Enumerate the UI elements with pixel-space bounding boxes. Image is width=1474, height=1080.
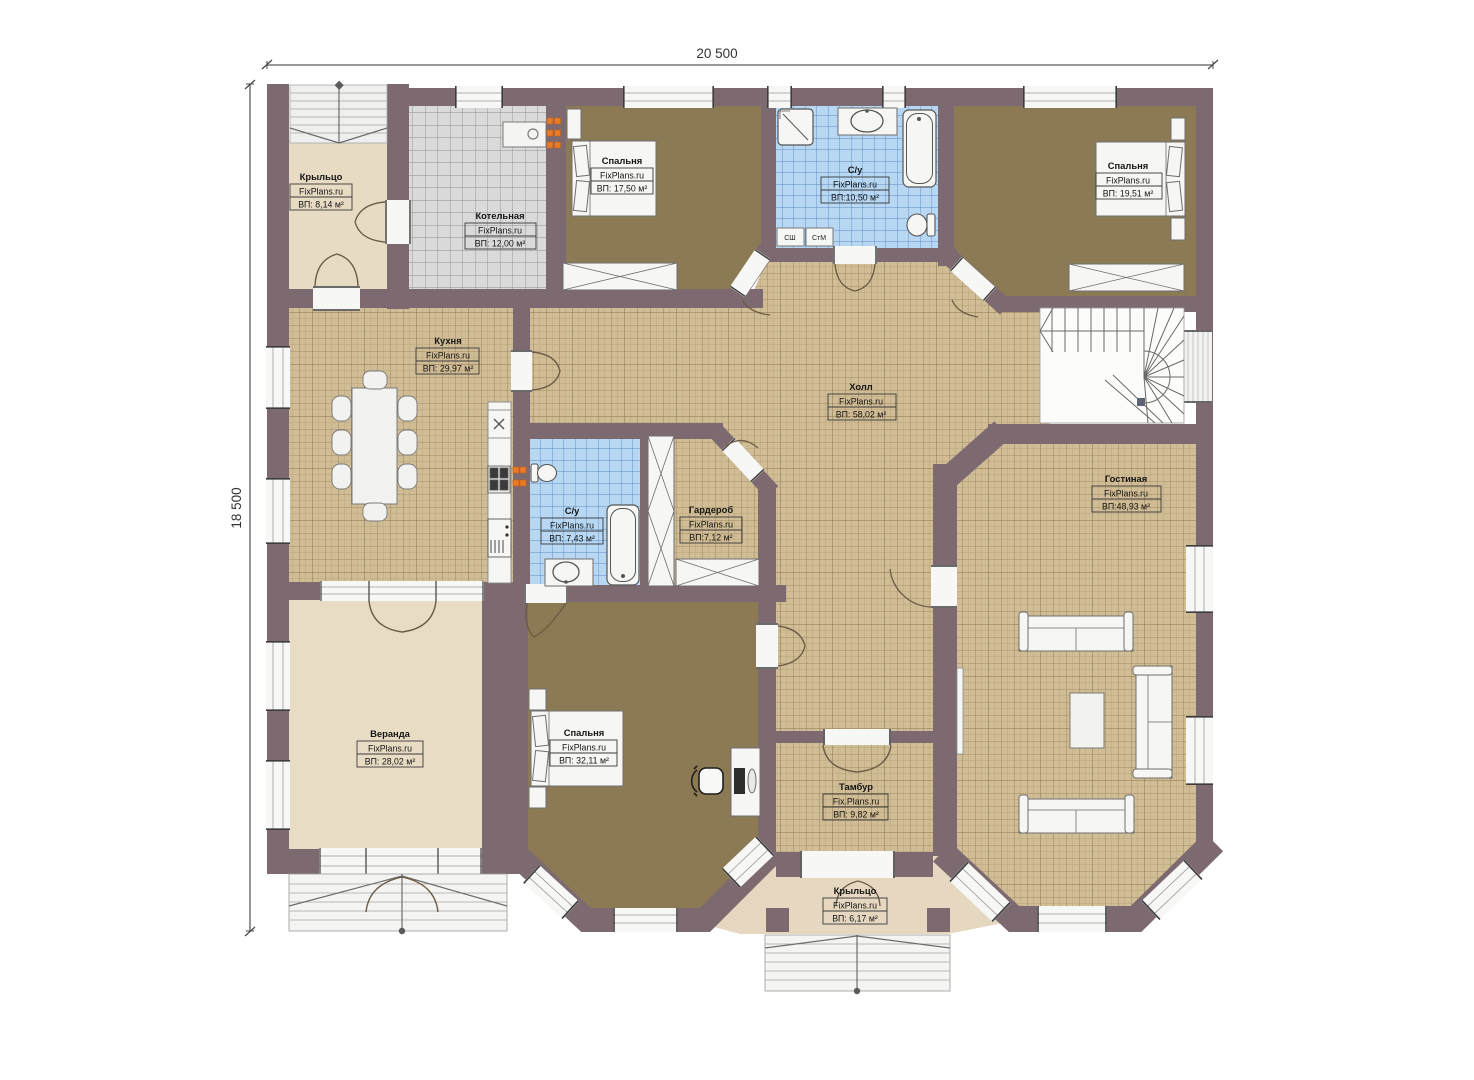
svg-text:ВП:10,50 м²: ВП:10,50 м² bbox=[831, 193, 879, 203]
svg-text:FixPlans.ru: FixPlans.ru bbox=[562, 743, 606, 753]
svg-text:Крыльцо: Крыльцо bbox=[834, 885, 877, 896]
svg-text:FixPlans.ru: FixPlans.ru bbox=[689, 520, 733, 530]
svg-text:Спальня: Спальня bbox=[1108, 160, 1149, 171]
svg-text:Спальня: Спальня bbox=[564, 727, 605, 738]
svg-text:Гардероб: Гардероб bbox=[689, 504, 734, 515]
svg-text:FixPlans.ru: FixPlans.ru bbox=[550, 521, 594, 531]
svg-text:ВП: 9,82 м²: ВП: 9,82 м² bbox=[833, 810, 879, 820]
svg-text:С/у: С/у bbox=[565, 505, 580, 516]
svg-text:СШ: СШ bbox=[784, 235, 795, 242]
svg-text:ВП: 12,00 м²: ВП: 12,00 м² bbox=[475, 239, 526, 249]
svg-text:ВП: 6,17 м²: ВП: 6,17 м² bbox=[832, 914, 878, 924]
svg-text:ВП: 19,51 м²: ВП: 19,51 м² bbox=[1103, 189, 1154, 199]
svg-text:FixPlans.ru: FixPlans.ru bbox=[1104, 489, 1148, 499]
svg-text:18 500: 18 500 bbox=[229, 487, 244, 528]
svg-text:ВП: 8,14 м²: ВП: 8,14 м² bbox=[298, 200, 344, 210]
svg-text:FixPlans.ru: FixPlans.ru bbox=[426, 351, 470, 361]
svg-text:FixPlans.ru: FixPlans.ru bbox=[839, 397, 883, 407]
svg-text:20 500: 20 500 bbox=[696, 46, 737, 61]
svg-text:ВП: 28,02 м²: ВП: 28,02 м² bbox=[365, 757, 416, 767]
svg-text:Fix.Plans.ru: Fix.Plans.ru bbox=[833, 797, 880, 807]
svg-text:ВП: 29,97 м²: ВП: 29,97 м² bbox=[423, 364, 474, 374]
svg-text:ВП:48,93 м²: ВП:48,93 м² bbox=[1102, 502, 1150, 512]
svg-text:Гостиная: Гостиная bbox=[1105, 473, 1147, 484]
svg-text:ВП:7,12 м²: ВП:7,12 м² bbox=[689, 533, 732, 543]
svg-text:Тамбур: Тамбур bbox=[839, 781, 873, 792]
svg-text:ВП: 32,11 м²: ВП: 32,11 м² bbox=[559, 756, 609, 766]
svg-text:FixPlans.ru: FixPlans.ru bbox=[478, 226, 522, 236]
svg-text:FixPlans.ru: FixPlans.ru bbox=[600, 171, 644, 181]
svg-text:Котельная: Котельная bbox=[475, 210, 524, 221]
svg-text:СтМ: СтМ bbox=[812, 235, 826, 242]
svg-text:Крыльцо: Крыльцо bbox=[300, 171, 343, 182]
svg-text:FixPlans.ru: FixPlans.ru bbox=[1106, 176, 1150, 186]
svg-text:Кухня: Кухня bbox=[434, 335, 461, 346]
svg-text:ВП: 58,02 м²: ВП: 58,02 м² bbox=[836, 410, 887, 420]
svg-text:FixPlans.ru: FixPlans.ru bbox=[299, 187, 343, 197]
svg-text:ВП: 7,43 м²: ВП: 7,43 м² bbox=[549, 534, 595, 544]
svg-text:FixPlans.ru: FixPlans.ru bbox=[368, 744, 412, 754]
svg-text:FixPlans.ru: FixPlans.ru bbox=[833, 901, 877, 911]
svg-text:FixPlans.ru: FixPlans.ru bbox=[833, 180, 877, 190]
svg-text:ВП: 17,50 м²: ВП: 17,50 м² bbox=[597, 184, 648, 194]
svg-text:С/у: С/у bbox=[848, 164, 863, 175]
svg-text:Холл: Холл bbox=[849, 381, 873, 392]
svg-text:Спальня: Спальня bbox=[602, 155, 643, 166]
svg-text:Веранда: Веранда bbox=[370, 728, 411, 739]
